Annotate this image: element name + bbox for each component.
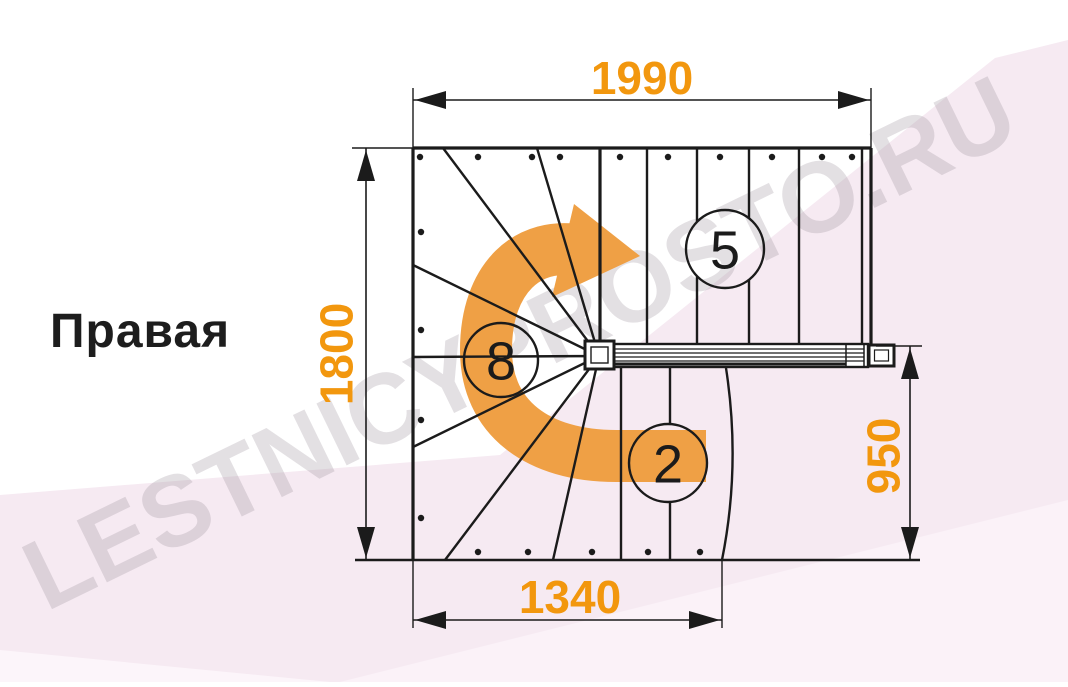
winder-step-count: 8 [486,331,516,391]
page-title: Правая [50,304,230,359]
landing-beam [588,344,868,367]
center-newel-post [585,341,614,369]
staircase-plan-page: LESTNICYPROSTO.RU [0,0,1068,682]
lower-flight-step-count: 2 [653,434,683,494]
dimension-label-right: 950 [858,418,910,495]
dimension-label-left: 1800 [311,303,363,405]
dimension-label-top: 1990 [591,52,693,104]
dimension-label-bottom: 1340 [519,571,621,623]
right-newel-post [869,345,894,366]
upper-flight-step-count: 5 [710,220,740,280]
